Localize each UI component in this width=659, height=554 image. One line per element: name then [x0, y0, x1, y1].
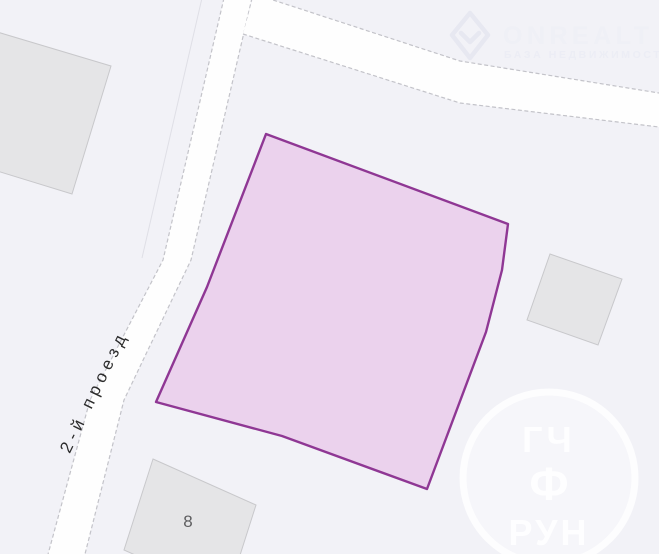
round-seal-monogram-icon: ГЧ Ф РУН [463, 392, 635, 554]
seal-row-1: ГЧ [522, 419, 576, 460]
seal-row-2: Ф [529, 458, 568, 510]
onrealt-title: ONREALT [503, 22, 653, 50]
building-number-label: 8 [183, 512, 192, 531]
onrealt-subtitle: БАЗА НЕДВИЖИМОСТИ [504, 49, 659, 61]
map-canvas[interactable]: 8 2-й проезд ONREALT БАЗА НЕДВИЖИМОСТИ [0, 0, 659, 554]
seal-row-3: РУН [509, 512, 590, 553]
